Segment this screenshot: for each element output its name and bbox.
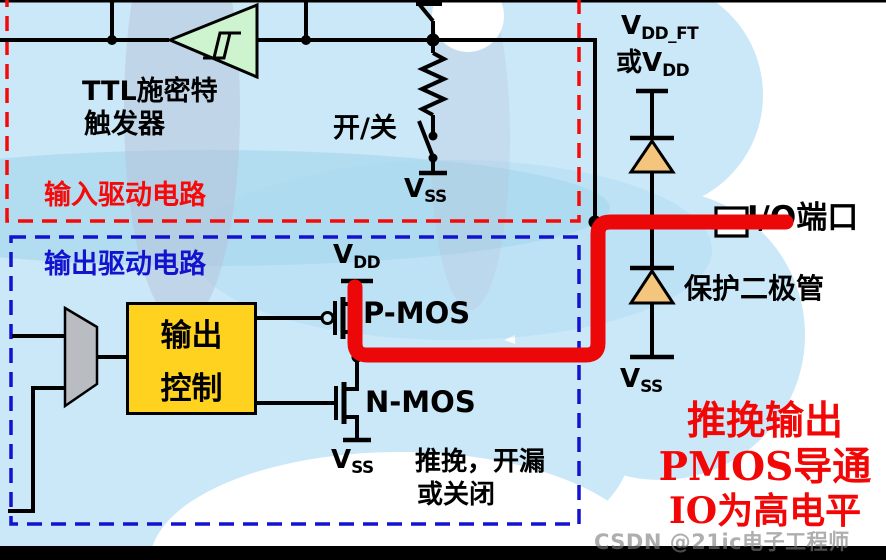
input-section-label: 输入驱动电路 (44, 182, 206, 210)
gpio-circuit-diagram: TTL施密特 触发器 输入驱动电路 输出驱动电路 开/关 VSS VDD_FT … (0, 0, 886, 560)
output-control-line2: 控制 (161, 363, 223, 408)
output-control-line1: 输出 (161, 310, 223, 355)
watermark: CSDN @21ic电子工程师 (594, 526, 850, 556)
io-port-label: I/O端口 (747, 202, 858, 235)
schmitt-label-line2: 触发器 (84, 111, 165, 139)
drive-mode-note-line2: 或关闭 (417, 482, 495, 509)
switch-label: 开/关 (333, 115, 397, 143)
output-control-box: 输出 控制 (126, 302, 257, 415)
pmos-label: P-MOS (363, 298, 470, 328)
output-section-label: 输出驱动电路 (44, 251, 206, 279)
vss-label-switch: VSS (404, 176, 447, 206)
top-border-bar (0, 0, 886, 3)
vdd-label-pmos: VDD (333, 242, 380, 272)
io-pad-square (716, 208, 747, 236)
protection-diode-label: 保护二极管 (684, 274, 824, 303)
drive-mode-note-line1: 推挽，开漏 (415, 449, 545, 476)
vss-label-nmos: VSS (331, 447, 374, 477)
vss-label-diode: VSS (620, 366, 663, 396)
schmitt-label-line1: TTL施密特 (82, 78, 218, 106)
annotation-block: 推挽输出 PMOS导通 IO为高电平 (646, 398, 884, 534)
nmos-label: N-MOS (365, 387, 476, 417)
vdd-ft-label: VDD_FT (621, 13, 698, 43)
annotation-line1: 推挽输出 (646, 398, 884, 444)
annotation-line2: PMOS导通 (646, 444, 884, 490)
or-vdd-label: 或VDD (616, 50, 689, 80)
